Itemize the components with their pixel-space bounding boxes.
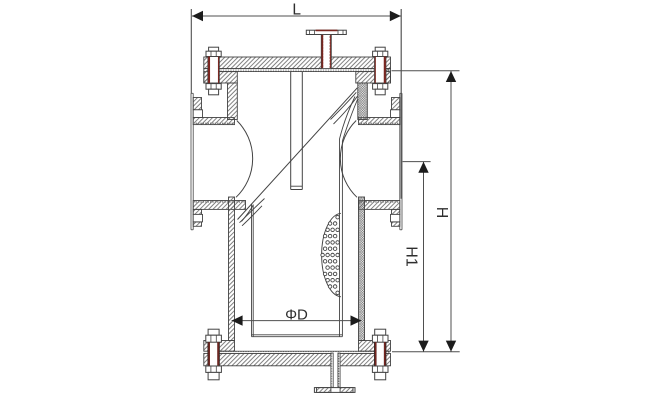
svg-text:ΦD: ΦD — [285, 306, 308, 323]
svg-text:H: H — [433, 207, 450, 219]
svg-text:H1: H1 — [403, 246, 420, 267]
svg-text:L: L — [292, 2, 301, 19]
